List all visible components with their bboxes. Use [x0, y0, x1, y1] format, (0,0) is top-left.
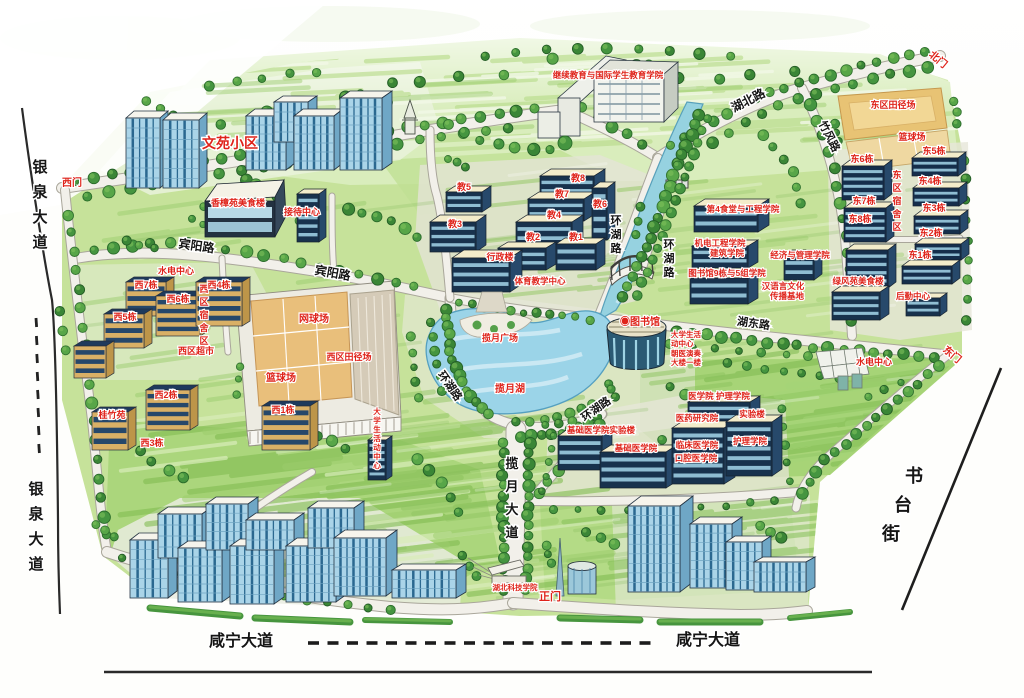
svg-text:东1栋: 东1栋 — [908, 249, 931, 260]
svg-text:基础医学院实验楼: 基础医学院实验楼 — [566, 425, 636, 435]
svg-text:西6栋: 西6栋 — [166, 293, 189, 304]
svg-text:教4: 教4 — [546, 209, 561, 220]
svg-text:宿: 宿 — [199, 309, 208, 320]
svg-text:建筑学院: 建筑学院 — [709, 248, 745, 258]
svg-text:道: 道 — [28, 555, 43, 573]
svg-text:西2栋: 西2栋 — [154, 389, 177, 400]
svg-text:大: 大 — [32, 208, 47, 226]
svg-text:泉: 泉 — [31, 183, 48, 201]
svg-text:大学生活: 大学生活 — [671, 329, 701, 339]
svg-text:大楼一楼: 大楼一楼 — [671, 357, 701, 367]
svg-text:动中心: 动中心 — [671, 338, 694, 348]
svg-text:继续教育与国际学生教育学院: 继续教育与国际学生教育学院 — [553, 70, 664, 80]
svg-text:湖: 湖 — [611, 227, 622, 241]
svg-text:西门: 西门 — [62, 176, 82, 189]
svg-text:篮球场: 篮球场 — [897, 131, 925, 142]
svg-text:区: 区 — [892, 183, 901, 193]
svg-text:揽月广场: 揽月广场 — [482, 332, 518, 343]
svg-text:水电中心: 水电中心 — [856, 356, 892, 367]
svg-text:咸宁大道: 咸宁大道 — [209, 631, 273, 650]
svg-text:东2栋: 东2栋 — [919, 227, 942, 238]
svg-text:绿风苑美食楼: 绿风苑美食楼 — [832, 276, 884, 286]
svg-text:湖: 湖 — [664, 251, 675, 265]
svg-text:护理学院: 护理学院 — [733, 436, 768, 446]
svg-text:接待中心: 接待中心 — [284, 206, 320, 217]
svg-text:道: 道 — [505, 525, 518, 540]
svg-text:东: 东 — [892, 169, 901, 180]
svg-text:基础医学院: 基础医学院 — [614, 443, 658, 453]
svg-text:西5栋: 西5栋 — [113, 311, 136, 322]
svg-text:银: 银 — [32, 158, 48, 176]
svg-text:月: 月 — [504, 479, 518, 494]
svg-text:大: 大 — [28, 530, 43, 548]
svg-text:活: 活 — [373, 433, 381, 443]
svg-text:东4栋: 东4栋 — [918, 175, 941, 186]
svg-text:桂竹苑: 桂竹苑 — [97, 409, 125, 420]
svg-text:东6栋: 东6栋 — [850, 153, 873, 164]
svg-text:文苑小区: 文苑小区 — [202, 135, 258, 151]
svg-text:朝医演奏: 朝医演奏 — [671, 348, 701, 358]
svg-text:区: 区 — [199, 336, 208, 346]
svg-text:医学院 护理学院: 医学院 护理学院 — [688, 391, 750, 401]
svg-text:教6: 教6 — [592, 198, 607, 209]
svg-text:机电工程学院: 机电工程学院 — [694, 238, 746, 248]
svg-text:口腔医学院: 口腔医学院 — [675, 453, 718, 463]
svg-text:东3栋: 东3栋 — [922, 202, 945, 213]
svg-text:书: 书 — [905, 466, 923, 486]
svg-text:图书馆9栋与5组学院: 图书馆9栋与5组学院 — [688, 268, 766, 278]
svg-text:行政楼: 行政楼 — [485, 251, 513, 262]
svg-text:泉: 泉 — [27, 505, 44, 523]
svg-text:咸宁大道: 咸宁大道 — [676, 630, 740, 649]
svg-text:东7栋: 东7栋 — [852, 195, 875, 206]
svg-text:体育教学中心: 体育教学中心 — [514, 276, 566, 286]
svg-text:医药研究院: 医药研究院 — [676, 413, 719, 423]
svg-text:正门: 正门 — [539, 589, 561, 603]
svg-text:后勤中心: 后勤中心 — [896, 291, 931, 301]
svg-text:生: 生 — [373, 424, 381, 434]
svg-text:水电中心: 水电中心 — [158, 265, 194, 276]
svg-text:香樟苑美食楼: 香樟苑美食楼 — [210, 197, 265, 208]
svg-text:宿: 宿 — [892, 195, 901, 206]
svg-text:◉图书馆: ◉图书馆 — [620, 315, 660, 328]
svg-text:网球场: 网球场 — [299, 312, 329, 325]
svg-text:西区超市: 西区超市 — [178, 345, 214, 356]
svg-text:中: 中 — [373, 451, 381, 461]
svg-text:环: 环 — [664, 238, 675, 251]
svg-text:学: 学 — [373, 415, 381, 425]
svg-text:街: 街 — [881, 523, 900, 544]
svg-text:心: 心 — [373, 460, 381, 470]
svg-text:实验楼: 实验楼 — [739, 409, 765, 419]
svg-text:教7: 教7 — [554, 188, 569, 199]
svg-text:揽: 揽 — [505, 456, 518, 471]
svg-text:大: 大 — [505, 502, 518, 517]
svg-text:舍: 舍 — [891, 208, 902, 219]
svg-text:区: 区 — [199, 297, 208, 307]
svg-text:路: 路 — [611, 241, 623, 255]
svg-text:大: 大 — [373, 406, 381, 416]
svg-text:区: 区 — [892, 222, 901, 232]
svg-text:西区田径场: 西区田径场 — [326, 351, 371, 362]
svg-text:教5: 教5 — [456, 181, 471, 192]
svg-text:银: 银 — [28, 480, 44, 498]
svg-text:汉语言文化: 汉语言文化 — [762, 281, 805, 291]
svg-text:湖北科技学院: 湖北科技学院 — [493, 582, 538, 592]
svg-text:台: 台 — [894, 494, 912, 515]
svg-text:路: 路 — [664, 265, 676, 279]
svg-text:舍: 舍 — [198, 322, 209, 333]
svg-text:揽月湖: 揽月湖 — [495, 382, 525, 395]
svg-text:篮球场: 篮球场 — [265, 371, 296, 384]
svg-text:经济与管理学院: 经济与管理学院 — [770, 250, 830, 260]
svg-text:环: 环 — [611, 214, 622, 227]
svg-text:道: 道 — [32, 233, 47, 251]
svg-text:传播基地: 传播基地 — [769, 291, 805, 301]
svg-text:西1栋: 西1栋 — [271, 404, 294, 415]
svg-text:临床医学院: 临床医学院 — [676, 440, 719, 450]
svg-text:西3栋: 西3栋 — [140, 437, 163, 448]
svg-text:教3: 教3 — [447, 218, 462, 229]
svg-text:东8栋: 东8栋 — [848, 213, 871, 224]
svg-text:西4栋: 西4栋 — [207, 279, 230, 290]
svg-text:东5栋: 东5栋 — [922, 145, 945, 156]
svg-text:教2: 教2 — [525, 231, 540, 242]
svg-text:动: 动 — [373, 442, 381, 452]
svg-text:教1: 教1 — [568, 231, 583, 242]
svg-text:第4食堂与工程学院: 第4食堂与工程学院 — [707, 204, 780, 214]
svg-text:教8: 教8 — [570, 172, 585, 183]
svg-text:西7栋: 西7栋 — [134, 279, 157, 290]
svg-text:东区田径场: 东区田径场 — [870, 99, 915, 110]
